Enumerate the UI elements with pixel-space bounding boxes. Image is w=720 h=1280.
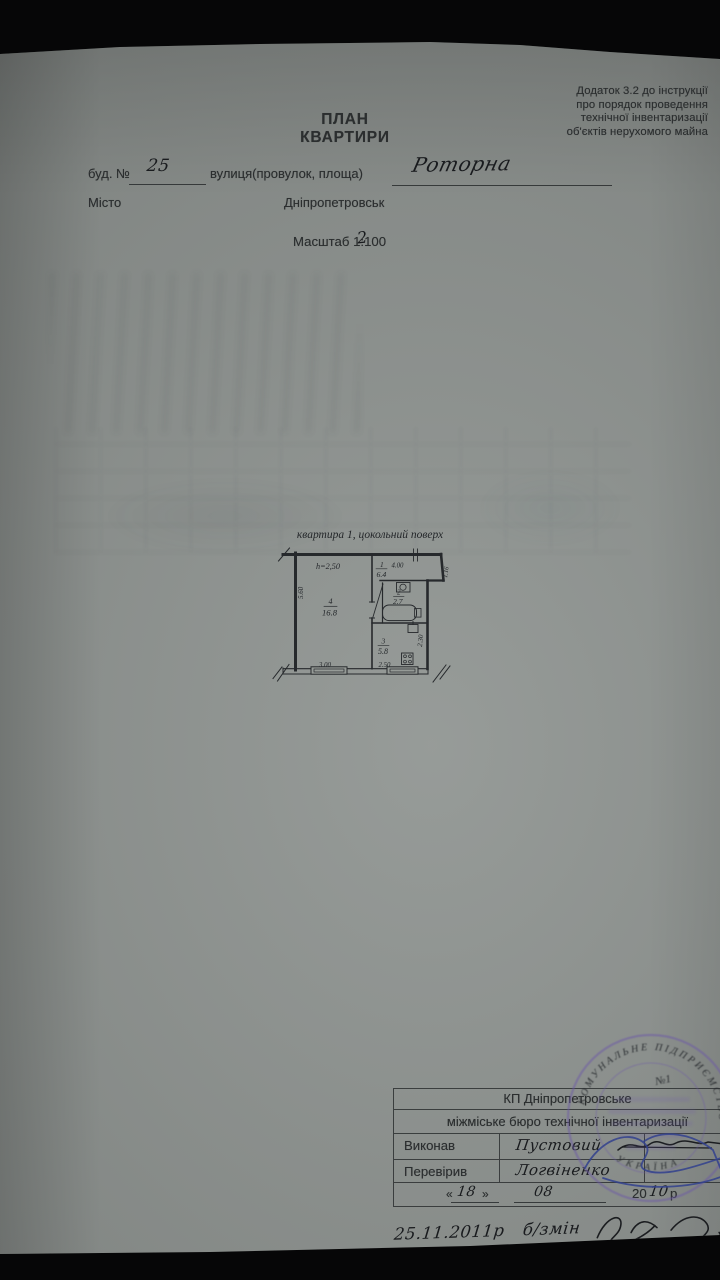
ceiling-height-label: h=2,50 (316, 562, 340, 571)
room3-number: 3 (381, 637, 386, 646)
photo-of-document: Додаток 3.2 до інструкції про порядок пр… (0, 0, 720, 1280)
paper-sheet: Додаток 3.2 до інструкції про порядок пр… (0, 38, 720, 1258)
room4-number: 4 (329, 597, 333, 606)
dim-right-top: 1.16 (442, 565, 451, 578)
window-right (387, 667, 418, 674)
scale-label: Масштаб 1: (293, 234, 364, 249)
checked-label: Перевірив (394, 1160, 500, 1182)
page-title-line1: ПЛАН (255, 111, 435, 129)
handwritten-date: 25.11.2011р (393, 1221, 505, 1244)
bathtub-tap-icon (415, 609, 422, 618)
city-value: Дніпропетровськ (284, 195, 384, 210)
room1-number: 1 (380, 560, 384, 569)
stove-burner (409, 655, 412, 658)
dim-left: 5.60 (297, 586, 305, 599)
date-month-handwritten: 08 (533, 1184, 554, 1200)
room4-area: 16.8 (322, 608, 338, 618)
handwritten-no-changes: б/змін (522, 1218, 581, 1239)
dim-bottom-left: 3.00 (318, 662, 331, 669)
floor-plan-drawing: h=2,50 5.60 4 16.8 1 6.4 4.00 1.16 2 2.7… (270, 520, 470, 700)
stove-burner (409, 660, 412, 663)
executed-label: Виконав (394, 1134, 500, 1159)
stove-burner (404, 655, 407, 658)
sink-icon (408, 625, 418, 633)
stamp-number: №1 (653, 1073, 672, 1088)
stove-burner (404, 660, 407, 663)
regulation-note-line: технічної інвентаризації (540, 112, 708, 126)
bathtub-icon (383, 605, 417, 621)
regulation-note-line: Додаток 3.2 до інструкції (540, 85, 708, 99)
building-label: буд. № (88, 166, 130, 181)
open-quote: « (446, 1187, 453, 1201)
hatch-bottom-left (273, 665, 289, 682)
scale-line: Масштаб 1:100 2 (293, 234, 386, 249)
building-number-handwritten: 25 (146, 156, 171, 176)
street-underline (392, 185, 612, 186)
signature-scribble (592, 1208, 659, 1248)
bleedthrough-smudge (470, 458, 630, 558)
date-day-handwritten: 18 (456, 1184, 477, 1200)
city-label: Місто (88, 195, 121, 210)
day-underline (451, 1202, 499, 1203)
bleedthrough-streaks (50, 273, 360, 433)
bath-door-swing (373, 584, 383, 617)
street-label: вулиця(провулок, площа) (210, 166, 363, 181)
signature-scribble (667, 1203, 720, 1246)
scale-handwritten-correction: 2 (356, 227, 369, 247)
toilet-bowl-icon (400, 584, 406, 590)
street-name-handwritten: Роторна (410, 151, 514, 177)
room3-area: 5.8 (378, 647, 388, 656)
dim-right-mid: 2.30 (416, 634, 425, 647)
building-underline (129, 184, 206, 185)
dim-top: 4.00 (392, 563, 404, 570)
regulation-note-line: об'єктів нерухомого майна (540, 126, 708, 140)
page-title-line2: КВАРТИРИ (255, 129, 435, 147)
room2-area: 2.7 (393, 597, 404, 606)
regulation-note-line: про порядок проведення (540, 99, 708, 113)
regulation-note: Додаток 3.2 до інструкції про порядок пр… (540, 85, 708, 140)
room2-number: 2 (397, 589, 401, 597)
room1-area: 6.4 (377, 570, 387, 579)
page-title: ПЛАН КВАРТИРИ (255, 111, 435, 146)
close-quote: » (482, 1187, 489, 1201)
hatch-bottom-right (433, 665, 450, 682)
handwritten-note-line: 25.11.2011р б/змін (393, 1204, 720, 1255)
dim-bottom-right: 2.50 (379, 662, 391, 669)
blue-pen-signature (575, 1126, 720, 1206)
